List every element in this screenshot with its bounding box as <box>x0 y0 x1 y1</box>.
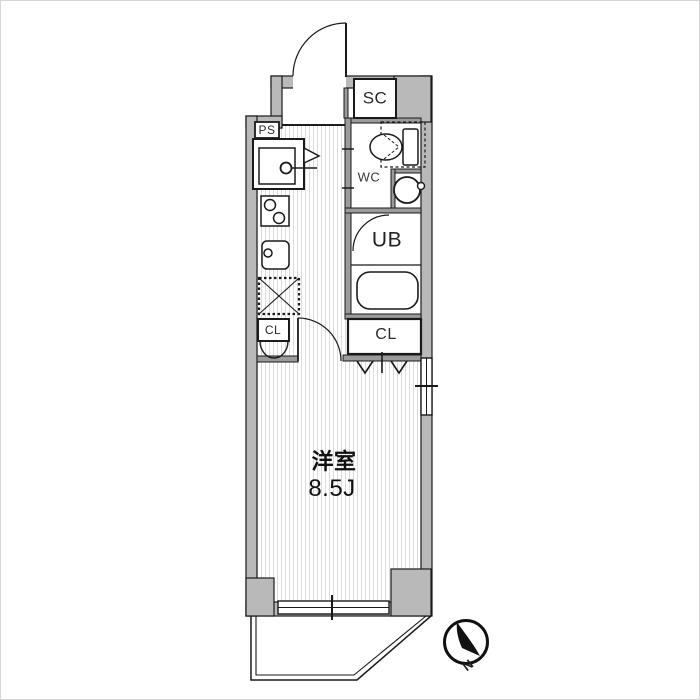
wall-entry-divider <box>344 88 348 118</box>
wall-wc-left <box>345 118 351 319</box>
wall-bottom-right-block <box>391 569 431 616</box>
wall-right <box>421 76 432 616</box>
stove-burner-1 <box>265 200 276 211</box>
wall-ub-top <box>345 208 421 213</box>
wall-top-right-block <box>394 76 431 122</box>
washbasin-bowl-icon <box>394 177 420 203</box>
label-room-size: 8.5J <box>308 477 355 501</box>
label-closet-left: CL <box>265 324 281 336</box>
bathtub-icon <box>357 272 418 309</box>
balcony-outer-rail <box>251 616 431 680</box>
kitchen-faucet-icon <box>281 163 292 174</box>
toilet-bowl-icon <box>370 134 402 160</box>
toilet-tank <box>403 129 418 165</box>
balcony <box>251 616 431 680</box>
wall-bottom-left-block <box>246 578 274 616</box>
washbasin-tap-icon <box>418 183 425 190</box>
entry-door-swing-arc <box>293 23 346 76</box>
label-pipe-space: PS <box>258 124 275 136</box>
entry-door-opening <box>293 75 346 90</box>
floor-plan-canvas: SC PS WC UB CL CL 洋室 8.5J N <box>0 0 700 700</box>
balcony-inner-rail <box>256 616 426 675</box>
label-unit-bath: UB <box>372 230 402 251</box>
mini-basin-drain <box>264 249 272 257</box>
label-room-name: 洋室 <box>311 451 356 473</box>
label-toilet: WC <box>358 171 381 184</box>
entrance <box>293 23 346 90</box>
washbasin <box>394 177 425 203</box>
stove-burner-2 <box>274 213 285 224</box>
label-shoe-closet: SC <box>363 90 388 107</box>
entry-hall-floor <box>282 88 345 125</box>
label-closet-right: CL <box>375 327 396 343</box>
toilet-room <box>370 122 425 167</box>
floor-plan-drawing <box>1 1 700 700</box>
wall-left <box>246 116 257 616</box>
